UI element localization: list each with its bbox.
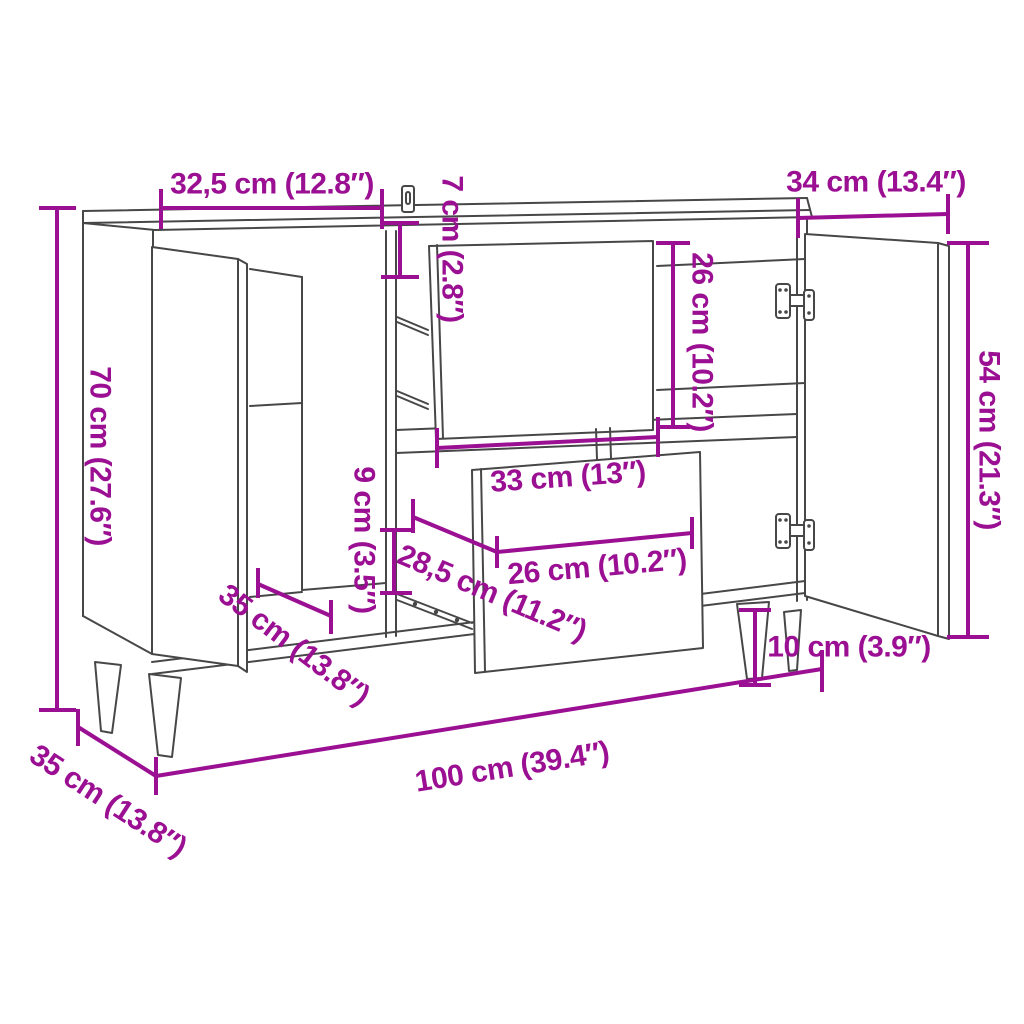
dimension-diagram-page: 32,5 cm (12.8″) 7 cm (2.8″) 34 cm (13.4″… <box>0 0 1024 1024</box>
wall-anchor-icon <box>402 186 414 212</box>
hinge-icon-bottom <box>776 514 814 550</box>
dim-label-right-door-width: 34 cm (13.4″) <box>786 166 966 199</box>
dim-top-rail-height: 7 cm (2.8″) <box>381 175 469 322</box>
sideboard-dimension-diagram: 32,5 cm (12.8″) 7 cm (2.8″) 34 cm (13.4″… <box>0 0 1024 1024</box>
dim-label-left-section-width: 32,5 cm (12.8″) <box>170 168 374 201</box>
dim-label-door-height: 54 cm (21.3″) <box>973 350 1006 530</box>
dim-drawer-front-height: 26 cm (10.2″) <box>656 243 719 432</box>
leg-front-left <box>149 674 181 757</box>
top-drawer <box>397 241 653 439</box>
dim-door-height: 54 cm (21.3″) <box>947 243 1006 637</box>
leg-rear-left <box>95 662 121 733</box>
right-door-open <box>805 234 949 639</box>
dim-overall-height: 70 cm (27.6″) <box>39 208 117 710</box>
dim-label-drawer-front-height: 26 cm (10.2″) <box>686 252 719 432</box>
dim-label-overall-height: 70 cm (27.6″) <box>84 366 117 546</box>
dim-base-clearance: 9 cm (3.5″) <box>348 466 413 613</box>
dim-label-overall-width: 100 cm (39.4″) <box>413 735 612 798</box>
hinge-icon-top <box>776 284 814 320</box>
dim-label-leg-height: 10 cm (3.9″) <box>767 631 930 664</box>
dim-right-door-width: 34 cm (13.4″) <box>786 166 966 239</box>
dim-label-top-rail-height: 7 cm (2.8″) <box>436 175 469 322</box>
dim-label-base-clearance: 9 cm (3.5″) <box>348 466 381 613</box>
